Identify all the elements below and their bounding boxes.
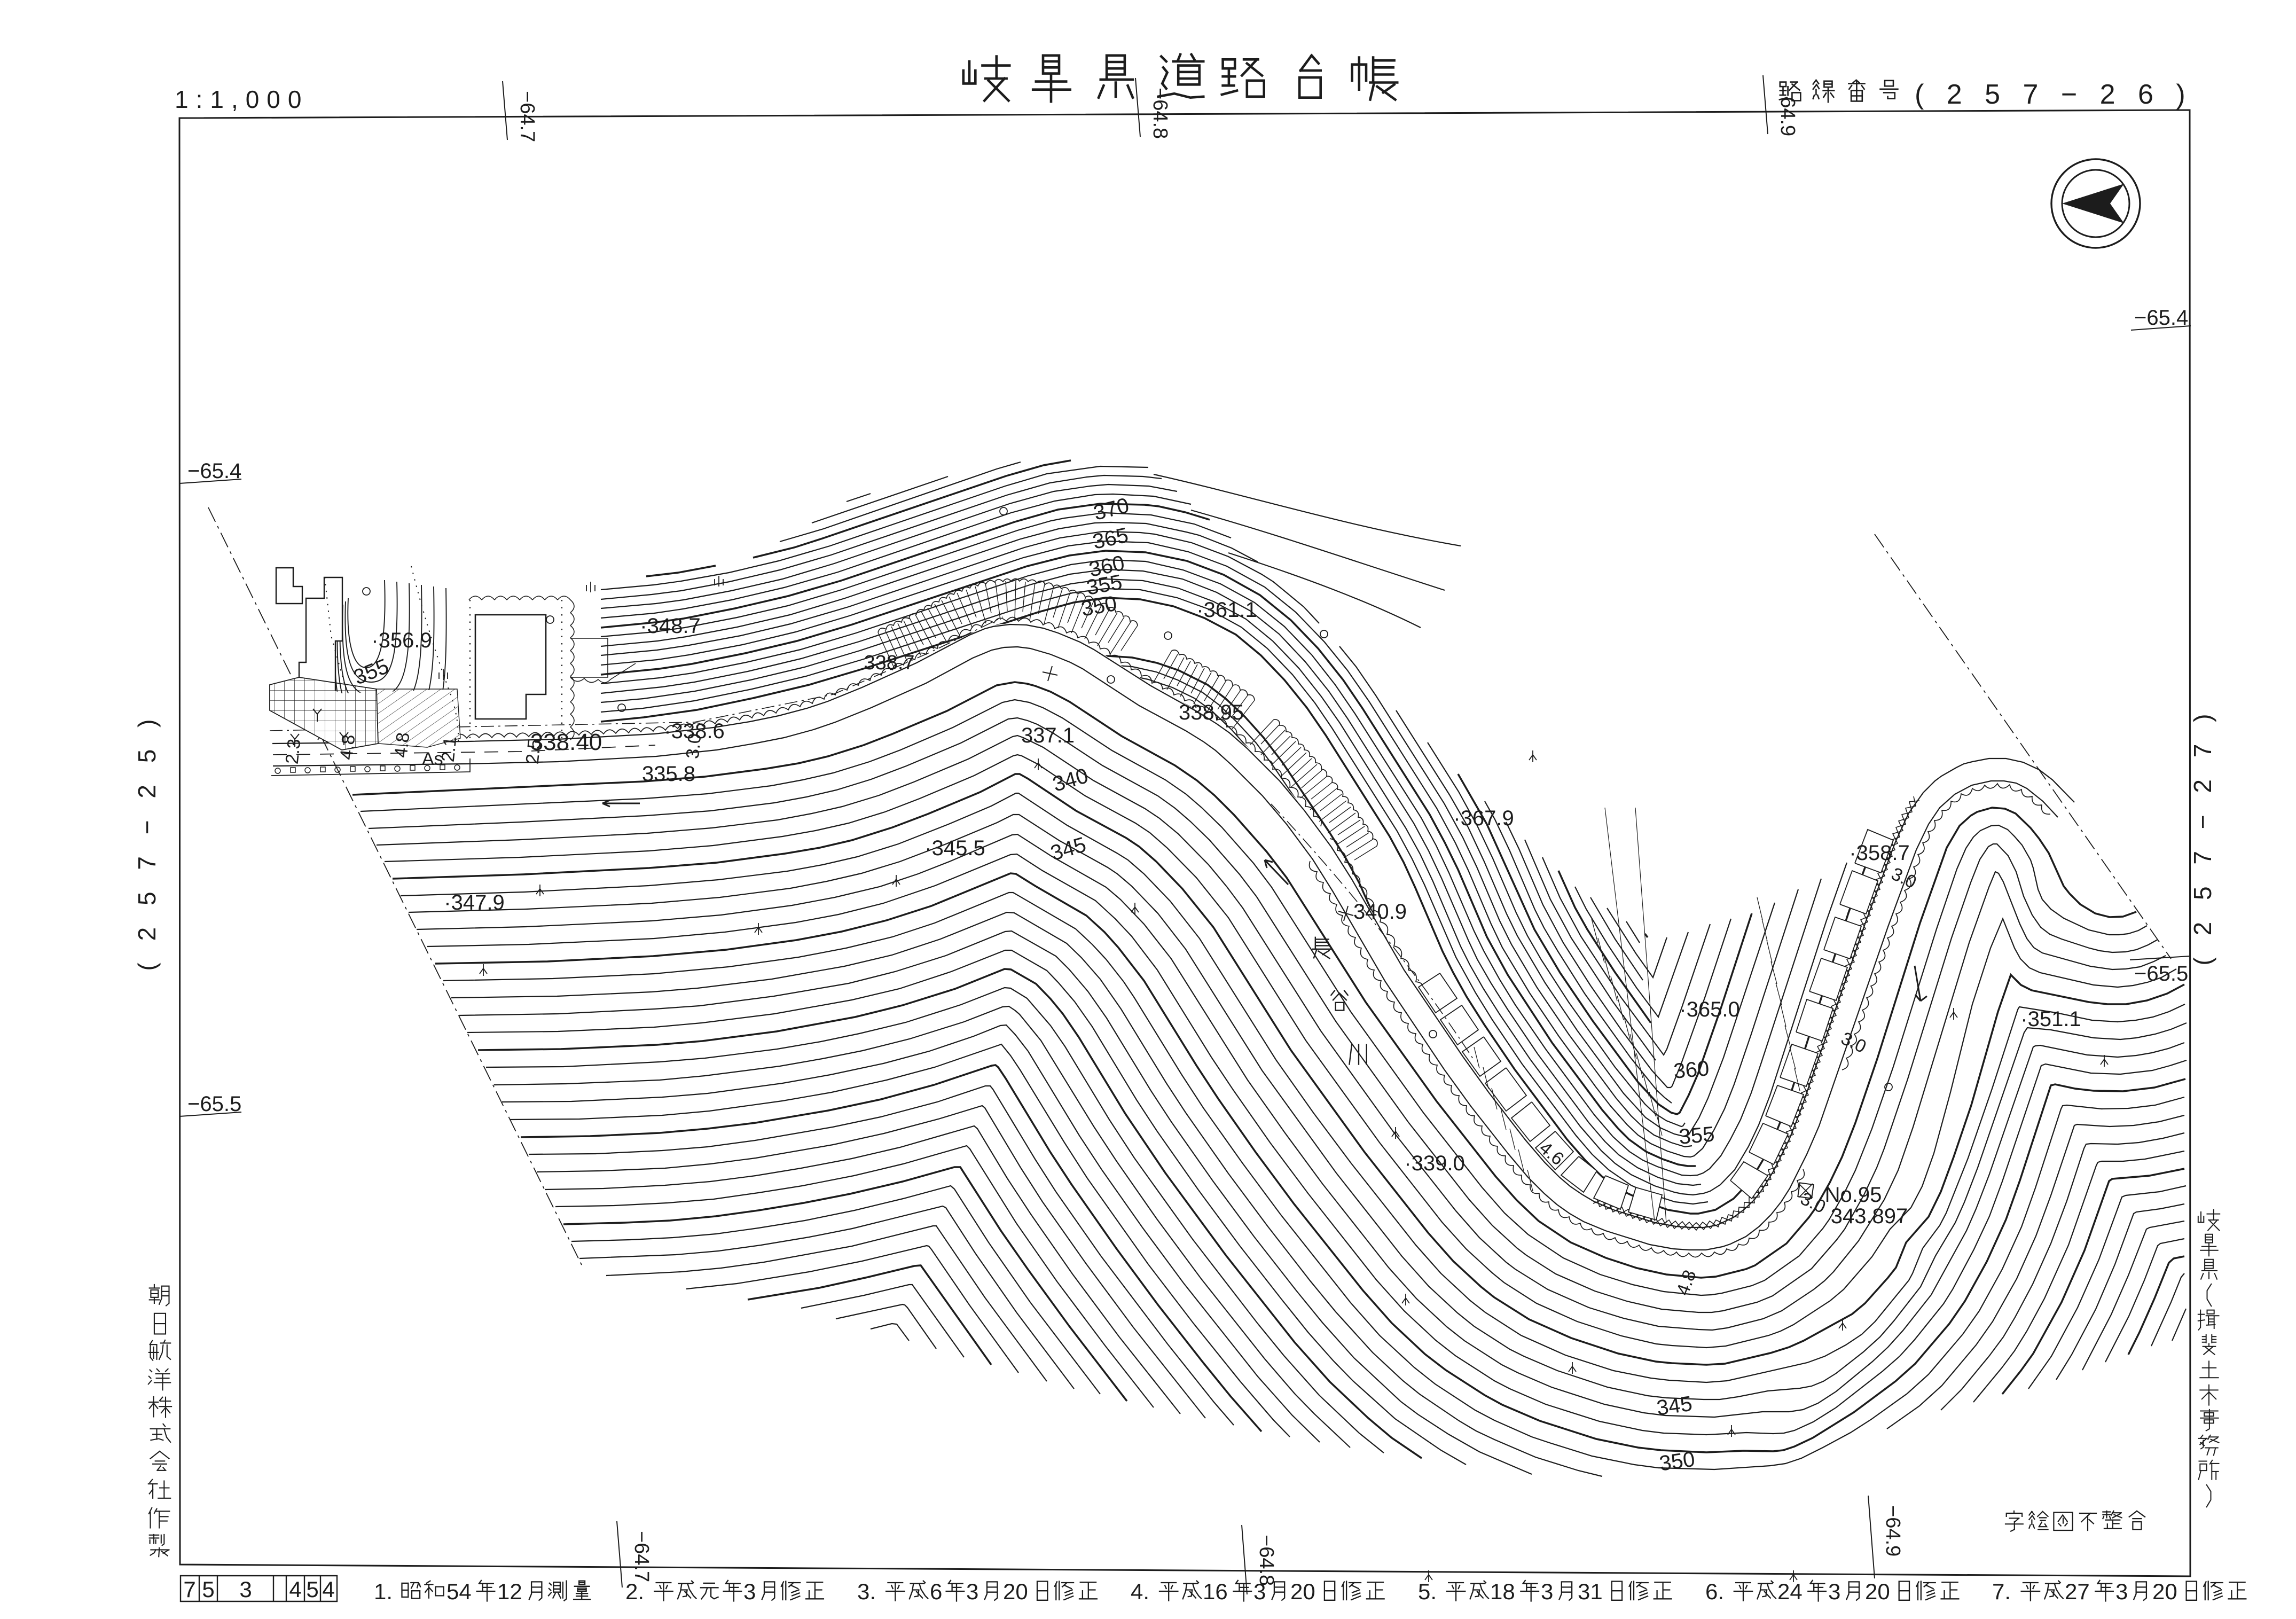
svg-text:·345.5: ·345.5 [924, 836, 985, 860]
svg-text:−65.5: −65.5 [187, 1092, 241, 1116]
svg-text:·367.9: ·367.9 [1453, 807, 1514, 830]
svg-text:2.: 2. [625, 1579, 644, 1604]
svg-text:5.: 5. [1418, 1579, 1437, 1604]
svg-text:6: 6 [930, 1579, 942, 1604]
svg-text:7.: 7. [1992, 1579, 2011, 1604]
svg-text:2.3: 2.3 [282, 738, 305, 765]
svg-text:No.95: No.95 [1825, 1183, 1882, 1207]
svg-text:−64.9: −64.9 [1882, 1505, 1904, 1557]
svg-text:4: 4 [322, 1577, 334, 1602]
svg-text:338.95: 338.95 [1179, 701, 1244, 724]
svg-text:−65.5: −65.5 [2134, 962, 2188, 986]
svg-text:3.0: 3.0 [683, 732, 706, 760]
svg-text:360: 360 [1673, 1057, 1710, 1083]
svg-text:337.1: 337.1 [1021, 724, 1075, 747]
svg-text:18: 18 [1490, 1579, 1515, 1604]
svg-text:4.8: 4.8 [391, 731, 414, 758]
svg-text:−64.9: −64.9 [1776, 85, 1799, 136]
svg-text:350: 350 [1658, 1448, 1696, 1476]
svg-text:−64.8: −64.8 [1149, 88, 1171, 139]
svg-text:4.8: 4.8 [336, 733, 359, 761]
svg-text:1.: 1. [374, 1579, 393, 1604]
svg-text:4: 4 [289, 1577, 301, 1602]
svg-text:27: 27 [2065, 1579, 2090, 1604]
svg-text:20: 20 [1865, 1579, 1890, 1604]
svg-text:·348.7: ·348.7 [640, 614, 700, 638]
svg-text:−64.7: −64.7 [516, 91, 538, 142]
svg-text:−64.8: −64.8 [1255, 1535, 1278, 1586]
svg-text:31: 31 [1578, 1579, 1603, 1604]
svg-text:3: 3 [1541, 1579, 1553, 1604]
svg-text:−65.4: −65.4 [187, 459, 241, 483]
svg-text:( 2 5 7 − 2 7 ): ( 2 5 7 − 2 7 ) [2189, 707, 2216, 966]
svg-text:54: 54 [446, 1579, 472, 1604]
svg-text:3: 3 [743, 1579, 756, 1604]
svg-text:5: 5 [202, 1577, 214, 1602]
svg-text:3: 3 [1828, 1579, 1840, 1604]
svg-text:355: 355 [1678, 1122, 1715, 1149]
svg-text:·365.0: ·365.0 [1679, 998, 1739, 1021]
svg-text:−64.7: −64.7 [630, 1531, 653, 1582]
svg-text:335.8: 335.8 [642, 762, 695, 786]
svg-text:·361.1: ·361.1 [1196, 598, 1257, 622]
svg-text:7: 7 [183, 1577, 195, 1602]
svg-text:2.5: 2.5 [522, 738, 545, 765]
svg-text:16: 16 [1203, 1579, 1228, 1604]
svg-text:20: 20 [2152, 1579, 2177, 1604]
svg-text:24: 24 [1777, 1579, 1803, 1604]
svg-text:( 2 5 7 − 2 6 ): ( 2 5 7 − 2 6 ) [1915, 79, 2193, 110]
svg-text:·358.7: ·358.7 [1849, 841, 1909, 865]
svg-text:( 2 5 7 − 2 5 ): ( 2 5 7 − 2 5 ) [133, 712, 161, 971]
svg-text:·347.9: ·347.9 [444, 891, 504, 914]
svg-text:12: 12 [497, 1579, 522, 1604]
svg-text:3: 3 [2115, 1579, 2128, 1604]
svg-text:345: 345 [1655, 1392, 1694, 1420]
svg-text:6.: 6. [1705, 1579, 1724, 1604]
svg-text:3: 3 [966, 1579, 978, 1604]
svg-text:4.: 4. [1131, 1579, 1149, 1604]
svg-text:343.897: 343.897 [1831, 1205, 1908, 1228]
svg-text:1:1,000: 1:1,000 [175, 85, 309, 113]
svg-text:·339.0: ·339.0 [1404, 1152, 1464, 1175]
svg-text:20: 20 [1003, 1579, 1028, 1604]
svg-text:−65.4: −65.4 [2134, 306, 2188, 330]
svg-text:3.: 3. [857, 1579, 876, 1604]
svg-text:340.9: 340.9 [1353, 900, 1407, 924]
svg-text:3: 3 [239, 1577, 252, 1602]
svg-text:20: 20 [1290, 1579, 1315, 1604]
svg-text:·351.1: ·351.1 [2020, 1007, 2081, 1031]
svg-text:5: 5 [306, 1577, 318, 1602]
svg-text:·356.9: ·356.9 [371, 629, 432, 652]
svg-text:338.7: 338.7 [864, 652, 914, 674]
svg-text:As: As [422, 749, 443, 769]
